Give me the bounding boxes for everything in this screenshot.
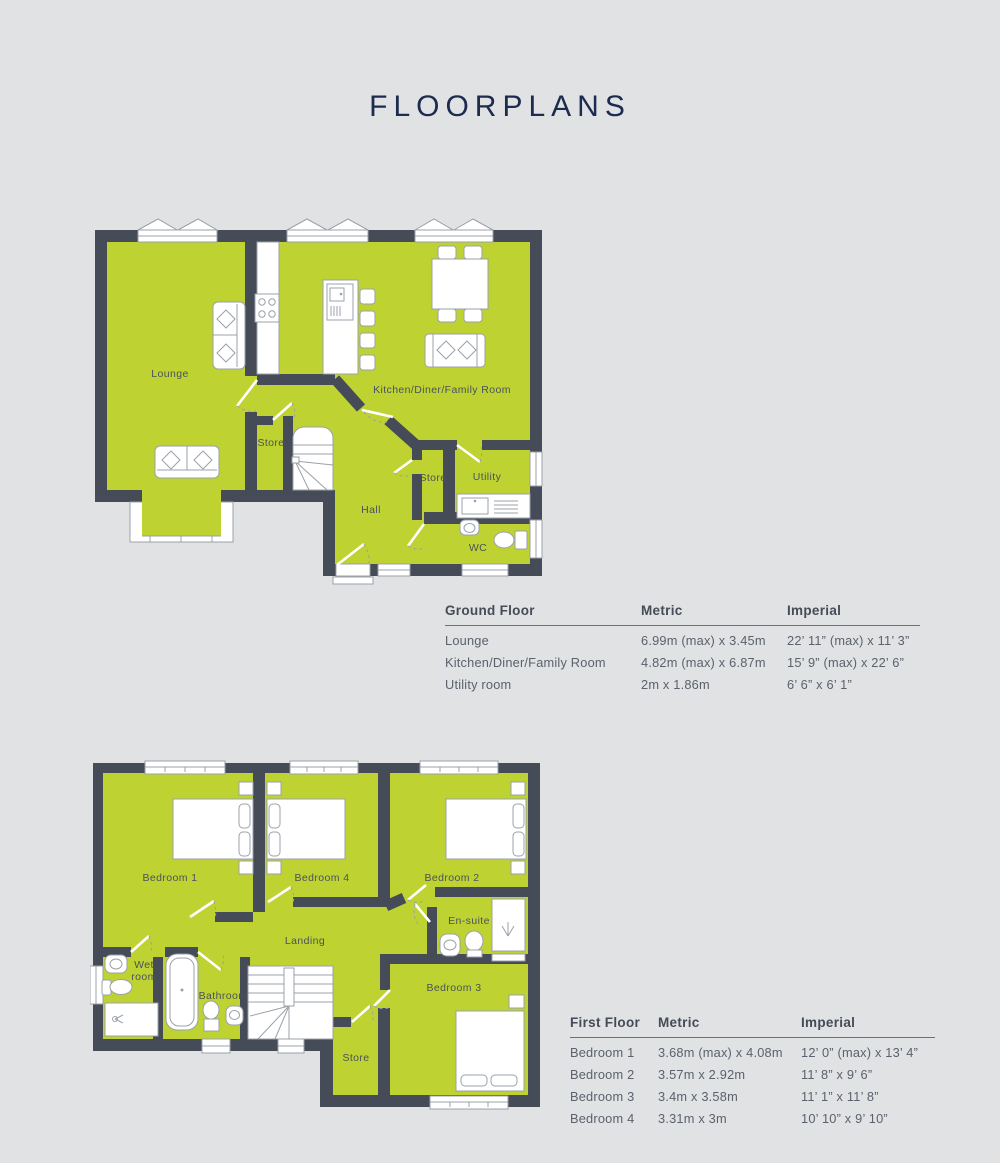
table-cell: Bedroom 3 xyxy=(570,1086,658,1108)
table-cell: 3.68m (max) x 4.08m xyxy=(658,1038,801,1064)
room-label-en-suite: En-suite xyxy=(448,915,490,927)
room-label-bedroom-1: Bedroom 1 xyxy=(143,872,198,884)
table-header-metric: Metric xyxy=(641,603,787,626)
table-header-metric: Metric xyxy=(658,1015,801,1038)
table-cell: 12’ 0” (max) x 13’ 4” xyxy=(801,1038,935,1064)
table-cell: 15’ 9” (max) x 22’ 6” xyxy=(787,652,920,674)
room-label-bathroom: Bathroom xyxy=(199,990,248,1002)
room-label-utility: Utility xyxy=(473,471,502,483)
table-header-imperial: Imperial xyxy=(801,1015,935,1038)
table-cell: 3.4m x 3.58m xyxy=(658,1086,801,1108)
sofa xyxy=(213,302,245,369)
page-title: FLOORPLANS xyxy=(0,90,1000,124)
room-label-wc: WC xyxy=(469,542,487,554)
table-header-floor: First Floor xyxy=(570,1015,658,1038)
table-cell: 22’ 11” (max) x 11’ 3” xyxy=(787,626,920,652)
floorplan-page: { "title": "FLOORPLANS", "colors": { "ba… xyxy=(0,0,1000,1163)
table-cell: Bedroom 2 xyxy=(570,1064,658,1086)
table-cell: 2m x 1.86m xyxy=(641,674,787,696)
window-icon xyxy=(415,219,493,242)
table-cell: 11’ 8” x 9’ 6” xyxy=(801,1064,935,1086)
room-label-store-2: Store xyxy=(419,472,446,484)
room-label-wet-room: room xyxy=(131,971,157,983)
ground-floor-plan: Lounge Kitchen/Diner/Family Room Store H… xyxy=(90,214,550,586)
sofa xyxy=(155,446,219,478)
table-header-floor: Ground Floor xyxy=(445,603,641,626)
kitchen-counter xyxy=(255,242,279,374)
room-label-bedroom-4: Bedroom 4 xyxy=(295,872,350,884)
window-icon xyxy=(287,219,368,242)
room-label-lounge: Lounge xyxy=(151,368,188,380)
room-label-landing: Landing xyxy=(285,935,325,947)
room-label-store: Store xyxy=(342,1052,369,1064)
table-cell: 6.99m (max) x 3.45m xyxy=(641,626,787,652)
room-label-wet-room: Wet xyxy=(134,959,154,971)
table-cell: Utility room xyxy=(445,674,641,696)
room-label-hall: Hall xyxy=(361,504,381,516)
table-cell: 10’ 10” x 9’ 10” xyxy=(801,1108,935,1130)
table-cell: Kitchen/Diner/Family Room xyxy=(445,652,641,674)
table-cell: 3.31m x 3m xyxy=(658,1108,801,1130)
table-cell: 3.57m x 2.92m xyxy=(658,1064,801,1086)
table-cell: Bedroom 4 xyxy=(570,1108,658,1130)
staircase xyxy=(292,427,333,490)
table-header-imperial: Imperial xyxy=(787,603,920,626)
room-label-bedroom-3: Bedroom 3 xyxy=(427,982,482,994)
table-cell: 11’ 1” x 11’ 8” xyxy=(801,1086,935,1108)
table-cell: 4.82m (max) x 6.87m xyxy=(641,652,787,674)
room-label-kitchen-diner: Kitchen/Diner/Family Room xyxy=(373,384,511,396)
ground-floor-table: Ground Floor Metric Imperial Lounge 6.99… xyxy=(445,603,920,696)
bay-window xyxy=(130,490,233,542)
room-label-bedroom-2: Bedroom 2 xyxy=(425,872,480,884)
table-cell: Bedroom 1 xyxy=(570,1038,658,1064)
first-floor-table: First Floor Metric Imperial Bedroom 1 3.… xyxy=(570,1015,935,1130)
first-floor-plan: Bedroom 1 Bedroom 4 Bedroom 2 En-suite L… xyxy=(90,754,550,1122)
staircase xyxy=(248,966,333,1039)
utility-sink xyxy=(457,494,530,518)
table-cell: 6’ 6” x 6’ 1” xyxy=(787,674,920,696)
room-label-store-1: Store xyxy=(257,437,284,449)
sofa xyxy=(425,334,485,367)
table-cell: Lounge xyxy=(445,626,641,652)
window-icon xyxy=(138,219,217,242)
